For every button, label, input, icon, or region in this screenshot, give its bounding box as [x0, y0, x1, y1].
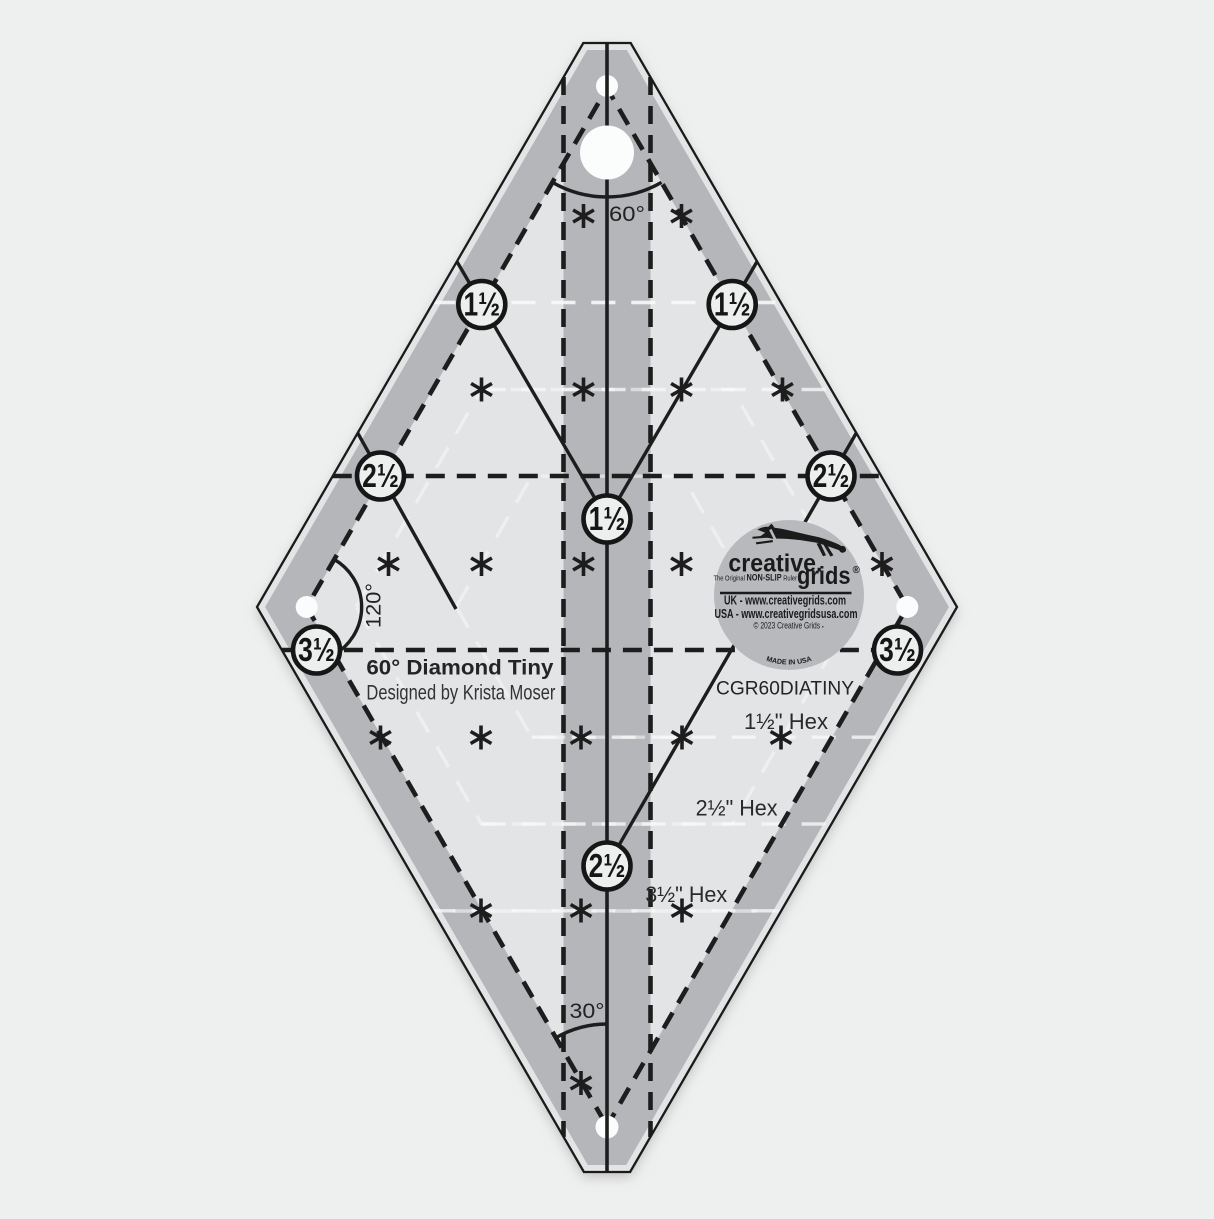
svg-text:USA - www.creativegridsusa.com: USA - www.creativegridsusa.com — [715, 606, 858, 621]
svg-text:60°: 60° — [609, 203, 645, 226]
svg-text:Designed by Krista Moser: Designed by Krista Moser — [366, 682, 555, 705]
svg-text:2½: 2½ — [813, 458, 850, 494]
svg-text:2½: 2½ — [362, 458, 399, 494]
svg-text:1½: 1½ — [463, 287, 500, 323]
svg-text:The Original NON-SLIP Ruler: The Original NON-SLIP Ruler — [714, 573, 798, 583]
svg-text:1½: 1½ — [589, 501, 626, 537]
svg-text:CGR60DIATINY: CGR60DIATINY — [716, 679, 854, 700]
svg-text:1½: 1½ — [714, 287, 751, 323]
svg-text:3½" Hex: 3½" Hex — [645, 882, 727, 907]
svg-text:®: ® — [853, 565, 861, 576]
svg-text:60° Diamond Tiny: 60° Diamond Tiny — [366, 656, 553, 680]
svg-text:1½" Hex: 1½" Hex — [744, 709, 828, 734]
svg-text:2½" Hex: 2½" Hex — [696, 796, 778, 821]
svg-text:3½: 3½ — [298, 632, 335, 668]
svg-text:30°: 30° — [570, 1000, 605, 1023]
svg-text:grids: grids — [797, 562, 851, 590]
svg-text:2½: 2½ — [589, 848, 626, 884]
svg-text:3½: 3½ — [879, 632, 916, 668]
svg-text:© 2023 Creative Grids ▪: © 2023 Creative Grids ▪ — [754, 621, 824, 632]
svg-text:120°: 120° — [363, 583, 386, 628]
